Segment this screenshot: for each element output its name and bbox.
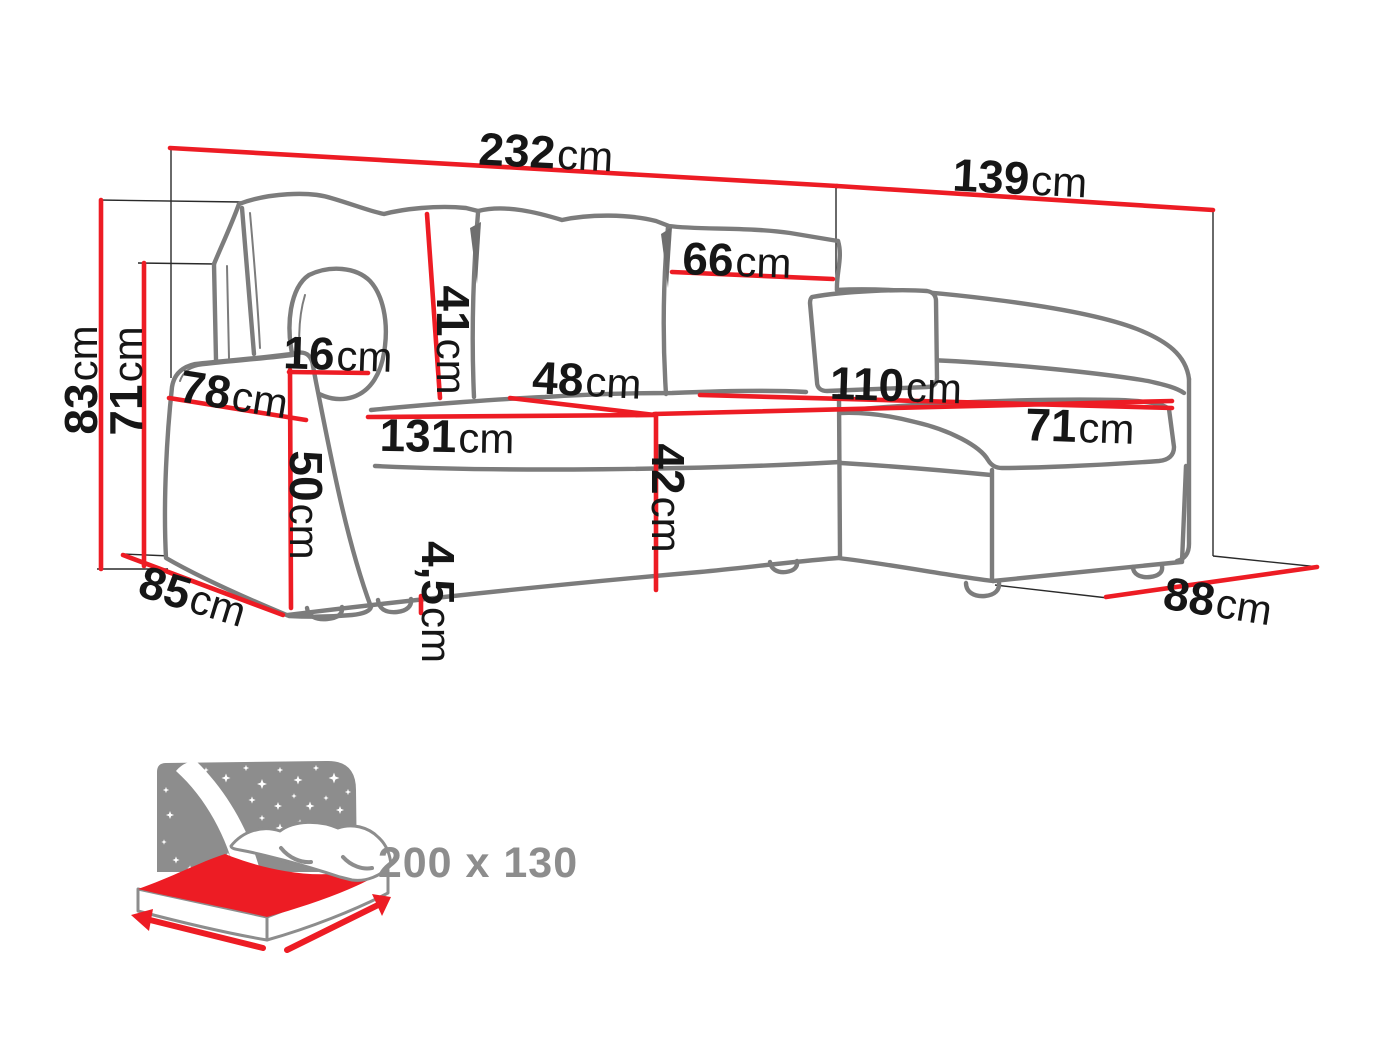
dim-armrest-width: 16cm	[283, 326, 394, 382]
dim-chaise-length: 110cm	[829, 357, 963, 414]
dim-back-cushion-width: 66cm	[682, 232, 793, 288]
dim-seat-width: 131cm	[379, 409, 515, 463]
dim-overall-width: 232cm	[477, 123, 614, 182]
dim-back-cushion-height: 41cm	[427, 285, 479, 394]
dim-overall-depth: 139cm	[951, 149, 1088, 208]
dim-seat-height: 42cm	[642, 443, 694, 552]
dim-armrest-height: 50cm	[280, 450, 332, 559]
dim-backrest-height: 71cm	[100, 326, 152, 435]
sleep-function-icon: 200 x 130	[131, 761, 578, 950]
dim-seat-depth: 48cm	[531, 351, 643, 409]
dim-chaise-seat-width: 71cm	[1025, 398, 1136, 454]
sleeping-area-size: 200 x 130	[378, 839, 578, 887]
sofa-dimension-diagram: 232cm 139cm 83cm 71cm 41cm 66cm 16cm 78c…	[0, 0, 1387, 1040]
dim-leg-height: 4,5cm	[412, 541, 464, 663]
